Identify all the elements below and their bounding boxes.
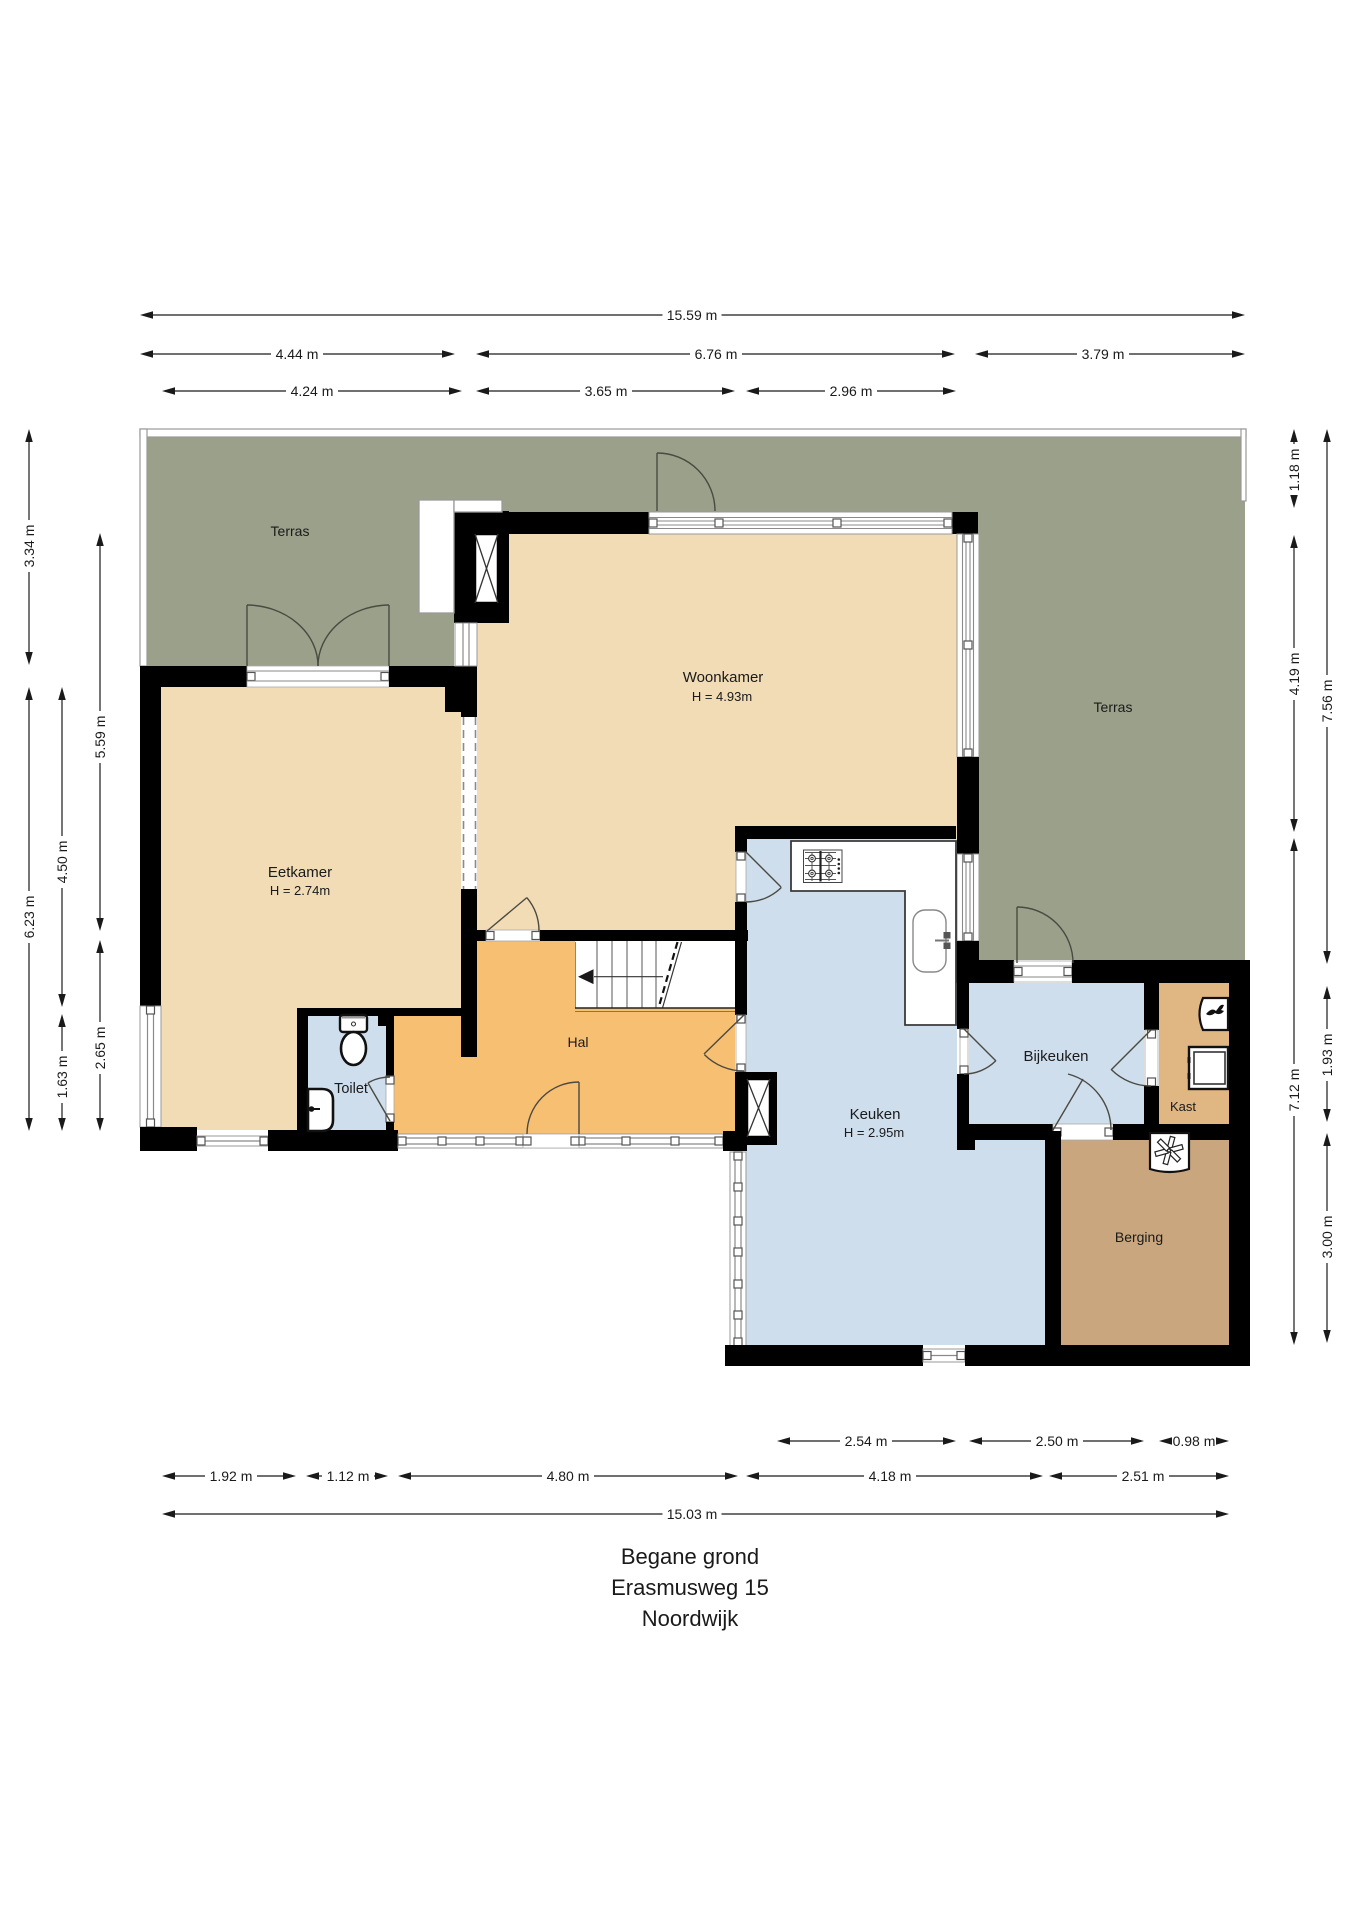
svg-text:Bijkeuken: Bijkeuken <box>1023 1048 1088 1065</box>
svg-text:Kast: Kast <box>1170 1099 1196 1114</box>
svg-text:H = 2.74m: H = 2.74m <box>270 883 330 898</box>
svg-text:H = 4.93m: H = 4.93m <box>692 689 752 704</box>
svg-text:6.76 m: 6.76 m <box>695 346 738 362</box>
svg-text:2.50 m: 2.50 m <box>1036 1433 1079 1449</box>
svg-text:1.18 m: 1.18 m <box>1286 449 1302 492</box>
svg-text:6.23 m: 6.23 m <box>21 896 37 939</box>
svg-text:1.93 m: 1.93 m <box>1319 1034 1335 1077</box>
svg-text:15.03 m: 15.03 m <box>667 1506 718 1522</box>
svg-text:Keuken: Keuken <box>850 1106 901 1123</box>
svg-text:4.19 m: 4.19 m <box>1286 653 1302 696</box>
svg-text:7.12 m: 7.12 m <box>1286 1069 1302 1112</box>
svg-text:Terras: Terras <box>271 523 310 539</box>
svg-text:Begane grond: Begane grond <box>621 1544 759 1569</box>
svg-text:4.18 m: 4.18 m <box>869 1468 912 1484</box>
svg-text:3.79 m: 3.79 m <box>1082 346 1125 362</box>
svg-text:1.63 m: 1.63 m <box>54 1056 70 1099</box>
svg-text:4.24 m: 4.24 m <box>291 383 334 399</box>
svg-text:Woonkamer: Woonkamer <box>683 669 764 686</box>
svg-text:3.65 m: 3.65 m <box>585 383 628 399</box>
svg-text:1.12 m: 1.12 m <box>327 1468 370 1484</box>
svg-text:Berging: Berging <box>1115 1229 1163 1245</box>
svg-text:0.98 m: 0.98 m <box>1173 1433 1216 1449</box>
svg-text:Noordwijk: Noordwijk <box>642 1606 740 1631</box>
svg-text:2.51 m: 2.51 m <box>1122 1468 1165 1484</box>
svg-text:Erasmusweg 15: Erasmusweg 15 <box>611 1575 769 1600</box>
svg-text:Terras: Terras <box>1094 699 1133 715</box>
svg-text:2.65 m: 2.65 m <box>92 1027 108 1070</box>
svg-text:H = 2.95m: H = 2.95m <box>844 1125 904 1140</box>
svg-text:2.54 m: 2.54 m <box>845 1433 888 1449</box>
svg-text:2.96 m: 2.96 m <box>830 383 873 399</box>
svg-text:3.34 m: 3.34 m <box>21 525 37 568</box>
svg-text:4.50 m: 4.50 m <box>54 841 70 884</box>
svg-text:Toilet: Toilet <box>334 1081 368 1097</box>
svg-text:15.59 m: 15.59 m <box>667 307 718 323</box>
svg-text:5.59 m: 5.59 m <box>92 716 108 759</box>
svg-text:Eetkamer: Eetkamer <box>268 864 332 881</box>
svg-text:3.00 m: 3.00 m <box>1319 1216 1335 1259</box>
svg-text:Hal: Hal <box>567 1034 588 1050</box>
svg-text:7.56 m: 7.56 m <box>1319 680 1335 723</box>
svg-text:4.80 m: 4.80 m <box>547 1468 590 1484</box>
svg-text:1.92 m: 1.92 m <box>210 1468 253 1484</box>
svg-text:4.44 m: 4.44 m <box>276 346 319 362</box>
